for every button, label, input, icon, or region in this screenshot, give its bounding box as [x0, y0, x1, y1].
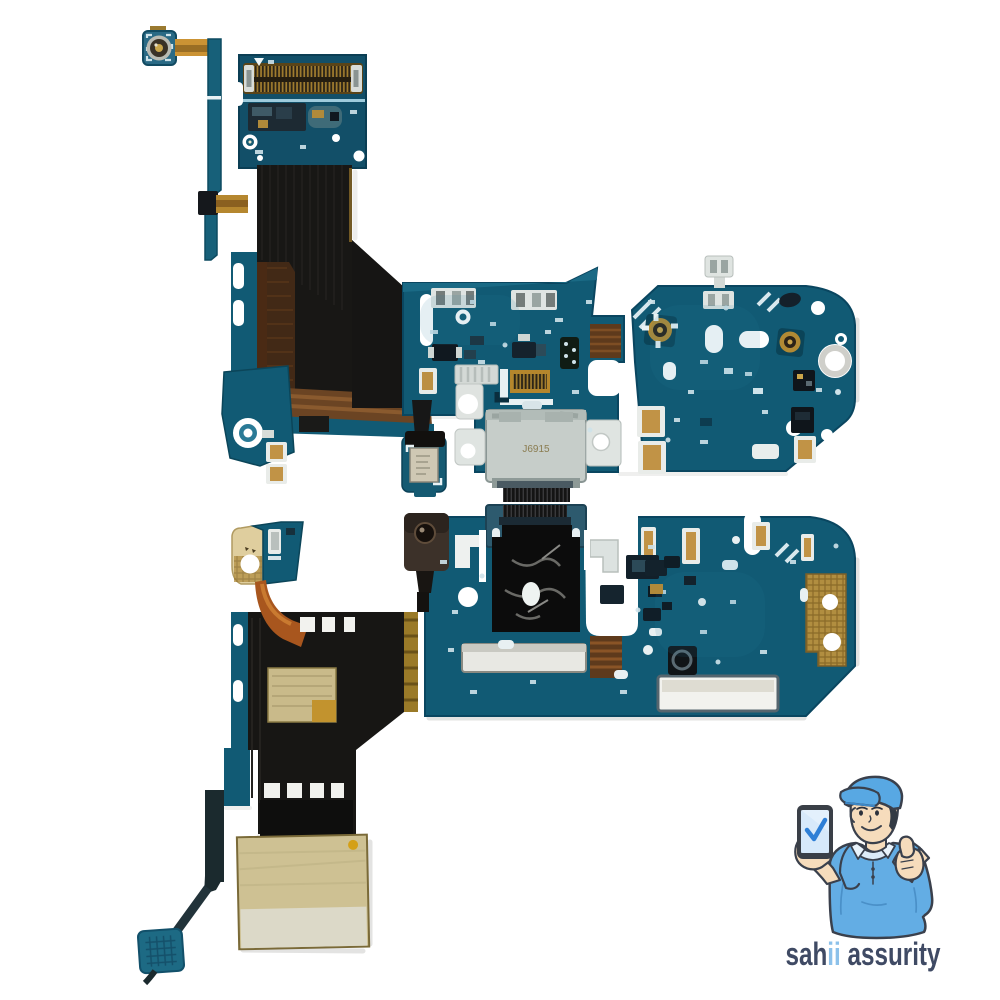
svg-text:J6915: J6915: [522, 444, 550, 455]
svg-text:sahii assurity: sahii assurity: [786, 936, 941, 972]
